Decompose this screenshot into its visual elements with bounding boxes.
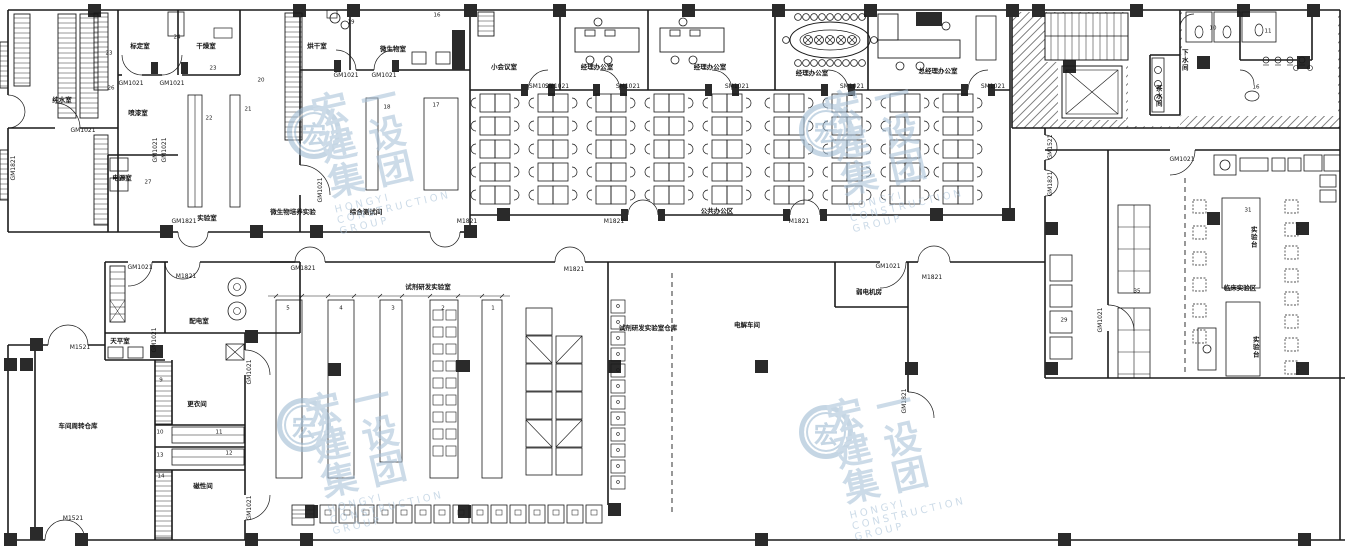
equipment-number: 2	[441, 306, 445, 312]
door-code-label: GM1021	[318, 177, 324, 202]
door-code-label: GM1821	[11, 155, 17, 180]
door-code-label: SM1021	[725, 84, 749, 90]
door-code-label: GM1021	[152, 327, 158, 352]
room-label: 车间周转仓库	[59, 423, 98, 430]
room-label: 试剂研发实验室仓库	[619, 325, 678, 332]
room-label: 经理办公室	[796, 70, 829, 77]
equipment-number: 26	[108, 86, 115, 92]
door-code-label: M1821	[789, 219, 809, 225]
equipment-number: 23	[210, 66, 217, 72]
room-label: 磁性间	[193, 483, 213, 490]
door-code-label: GM1021	[118, 81, 143, 87]
room-label: 电源室	[112, 175, 132, 182]
door-code-label: GM1021	[159, 81, 184, 87]
door-code-label: GM1021	[333, 73, 358, 79]
equipment-number: 16	[434, 13, 441, 19]
door-code-label: GM1021	[162, 137, 168, 162]
door-code-label: GM1021	[247, 359, 253, 384]
door-code-label: GM1021	[247, 495, 253, 520]
room-label: 标定室	[130, 43, 150, 50]
equipment-number: 22	[206, 116, 213, 122]
equipment-number: 18	[384, 105, 391, 111]
door-code-label: M1821	[604, 219, 624, 225]
room-label: 总经理办公室	[919, 68, 958, 75]
room-label: 烘干室	[307, 43, 327, 50]
door-code-label: GM1821	[1048, 171, 1054, 196]
door-code-label: SM1021	[545, 84, 569, 90]
room-label: 电解车间	[734, 322, 760, 329]
room-label: 临床实验区	[1224, 285, 1257, 292]
room-label: 小会议室	[491, 64, 517, 71]
door-code-label: SM1021	[616, 84, 640, 90]
room-label: 经理办公室	[581, 64, 614, 71]
door-code-label: M1821	[564, 267, 584, 273]
equipment-number: 23	[106, 51, 113, 57]
floor-plan-canvas: 纯水室标定室干燥室喷漆室电源室实验室烘干室微生物室综合测试间微生物培养实验小会议…	[0, 0, 1345, 548]
equipment-number: 17	[433, 103, 440, 109]
door-code-label: GM1821	[171, 219, 196, 225]
door-code-label: GM1021	[127, 265, 152, 271]
room-label: 实验室	[197, 215, 217, 222]
door-code-label: GM1821	[902, 388, 908, 413]
room-label: 综合测试间	[350, 209, 383, 216]
door-code-label: M1821	[922, 275, 942, 281]
room-label: 纯水室	[52, 97, 72, 104]
room-label: 喷漆室	[128, 110, 148, 117]
equipment-number: 20	[258, 78, 265, 84]
room-label: 公共办公区	[701, 208, 734, 215]
equipment-number: 14	[158, 474, 165, 480]
door-code-label: SM1021	[840, 84, 864, 90]
door-code-label: SM1021	[981, 84, 1005, 90]
equipment-number: 11	[1265, 29, 1272, 35]
room-label: 配电室	[189, 318, 209, 325]
door-code-label: GM1021	[153, 137, 159, 162]
equipment-number: 10	[1210, 26, 1217, 32]
door-code-label: M1521	[63, 516, 83, 522]
equipment-number: 9	[159, 378, 163, 384]
door-code-label: GM1821	[290, 266, 315, 272]
equipment-number: 10	[157, 430, 164, 436]
door-code-label: M1821	[176, 274, 196, 280]
floor-plan-drawing	[0, 0, 1345, 548]
equipment-number: 13	[157, 453, 164, 459]
equipment-number: 29	[1061, 318, 1068, 324]
door-code-label: GM1021	[1169, 157, 1194, 163]
equipment-number: 1	[491, 306, 495, 312]
room-label: 下水间	[1181, 49, 1188, 72]
door-code-label: M1521	[70, 345, 90, 351]
equipment-number: 19	[348, 20, 355, 26]
equipment-number: 24	[174, 35, 181, 41]
room-label: 微生物培养实验	[270, 209, 316, 216]
equipment-number: 5	[286, 306, 290, 312]
room-label: 实验台	[1250, 226, 1257, 249]
equipment-number: 11	[216, 430, 223, 436]
room-label: 茶水间	[1155, 85, 1162, 108]
door-code-label: GM1021	[70, 128, 95, 134]
room-label: 试剂研发实验室	[405, 284, 451, 291]
door-code-label: GM1521	[1048, 134, 1054, 159]
room-label: 微生物室	[380, 46, 406, 53]
equipment-number: 31	[1245, 208, 1252, 214]
equipment-number: 4	[339, 306, 343, 312]
door-code-label: GM1021	[875, 264, 900, 270]
room-label: 更衣间	[187, 401, 207, 408]
room-label: 弱电机房	[856, 289, 882, 296]
equipment-number: 27	[145, 180, 152, 186]
room-label: 干燥室	[196, 43, 216, 50]
door-code-label: GM1021	[1098, 307, 1104, 332]
door-code-label: GM1021	[371, 73, 396, 79]
room-label: 经理办公室	[694, 64, 727, 71]
door-code-label: M1821	[457, 219, 477, 225]
equipment-number: 3	[391, 306, 395, 312]
equipment-number: 35	[1134, 289, 1141, 295]
equipment-number: 12	[226, 451, 233, 457]
room-label: 实验台	[1252, 336, 1259, 359]
room-label: 天平室	[110, 338, 130, 345]
equipment-number: 16	[1253, 85, 1260, 91]
equipment-number: 21	[245, 107, 252, 113]
